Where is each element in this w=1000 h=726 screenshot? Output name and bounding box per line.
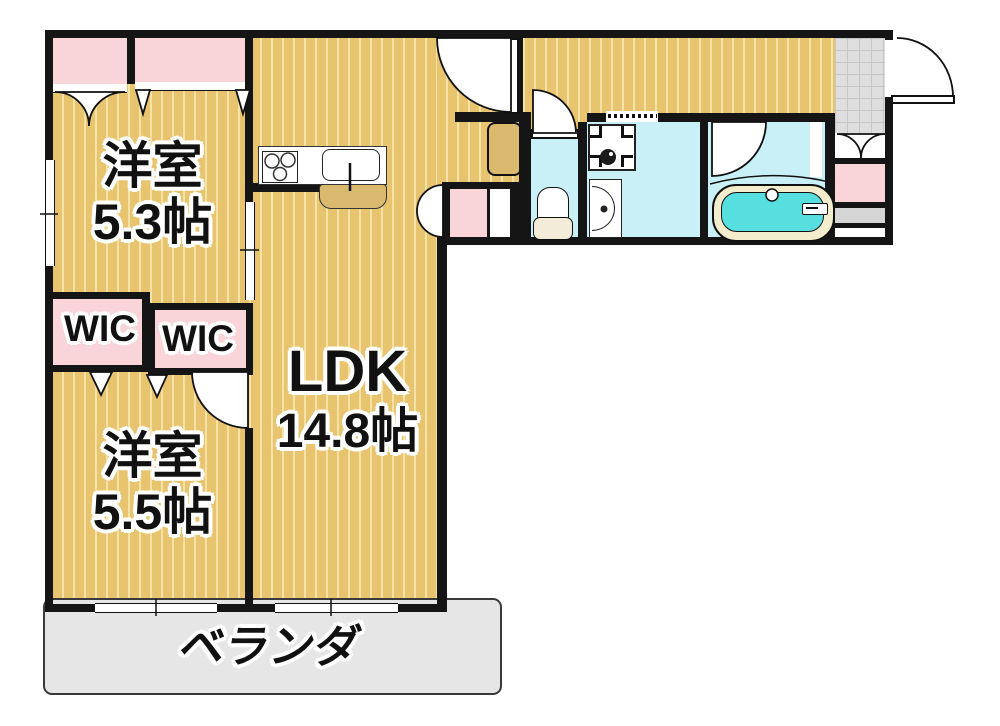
door-leaf-toilet xyxy=(531,129,579,139)
door-leaf-entry xyxy=(891,95,955,104)
door-leaf-hallway-ldk xyxy=(503,38,519,114)
closet-b xyxy=(135,38,253,82)
wic-left-label: WIC xyxy=(58,308,142,349)
bath-side-panel xyxy=(810,122,822,177)
bedroom1-size: 5.3帖 xyxy=(60,194,245,250)
accordion-door-washroom xyxy=(606,111,658,122)
floor-plan-canvas: 洋室 5.3帖 WIC WIC 洋室 5.5帖 LDK 14.8帖 ベランダ xyxy=(0,0,1000,726)
veranda-label: ベランダ xyxy=(146,622,395,672)
sliding-door-bedroom1 xyxy=(245,202,255,300)
entry-doorway-gap xyxy=(885,40,893,97)
stove-icon xyxy=(262,151,298,183)
bedroom2-label: 洋室 5.5帖 xyxy=(60,428,245,540)
wall-toilet-left xyxy=(519,122,531,245)
entrance-genkan-tile xyxy=(835,38,885,133)
genkan-step xyxy=(835,208,885,223)
window-bedroom2-veranda xyxy=(95,603,217,613)
bedroom1-name: 洋室 xyxy=(60,138,245,194)
bath-faucet-icon xyxy=(802,203,828,215)
kitchen-sink-icon xyxy=(322,149,380,181)
window-bedroom1-left xyxy=(45,160,55,266)
bedroom2-size: 5.5帖 xyxy=(60,484,245,540)
closet-a xyxy=(51,38,127,84)
ldk-name: LDK xyxy=(255,340,440,405)
wall-top xyxy=(45,30,893,38)
closet-a-shelf xyxy=(51,84,127,93)
ldk-closet-interior xyxy=(450,189,487,238)
wall-hall-stub xyxy=(455,112,531,122)
wall-bathroom-top xyxy=(708,113,833,122)
hallway-floor xyxy=(437,38,835,122)
washer-corner-tl xyxy=(590,126,602,138)
wall-wash-bath xyxy=(700,113,708,245)
ldk-label: LDK 14.8帖 xyxy=(255,340,440,459)
entry-door-arc xyxy=(897,38,953,97)
wall-bedroom1-right xyxy=(245,38,253,202)
ldk-closet-side xyxy=(490,189,510,238)
wic-right-label: WIC xyxy=(156,318,240,359)
wall-closet-pillar xyxy=(127,38,135,84)
closet-b-shelf xyxy=(135,82,253,91)
washer-corner-tr xyxy=(621,126,633,138)
ldk-size: 14.8帖 xyxy=(255,405,440,459)
washer-corner-br xyxy=(621,155,633,167)
toilet-tank xyxy=(533,217,573,240)
bedroom1-label: 洋室 5.3帖 xyxy=(60,138,245,250)
hall-cabinet xyxy=(487,122,522,176)
wall-door-frame xyxy=(519,38,523,112)
bedroom2-name: 洋室 xyxy=(60,428,245,484)
window-ldk-veranda xyxy=(275,603,398,613)
wall-toilet-right xyxy=(578,122,587,245)
shoe-closet xyxy=(835,164,885,202)
wall-left xyxy=(45,30,53,612)
genkan-step-border xyxy=(833,223,885,228)
counter-return xyxy=(319,184,387,209)
washer-corner-bl xyxy=(590,155,602,167)
wall-bedroom2-ldk xyxy=(245,428,253,604)
